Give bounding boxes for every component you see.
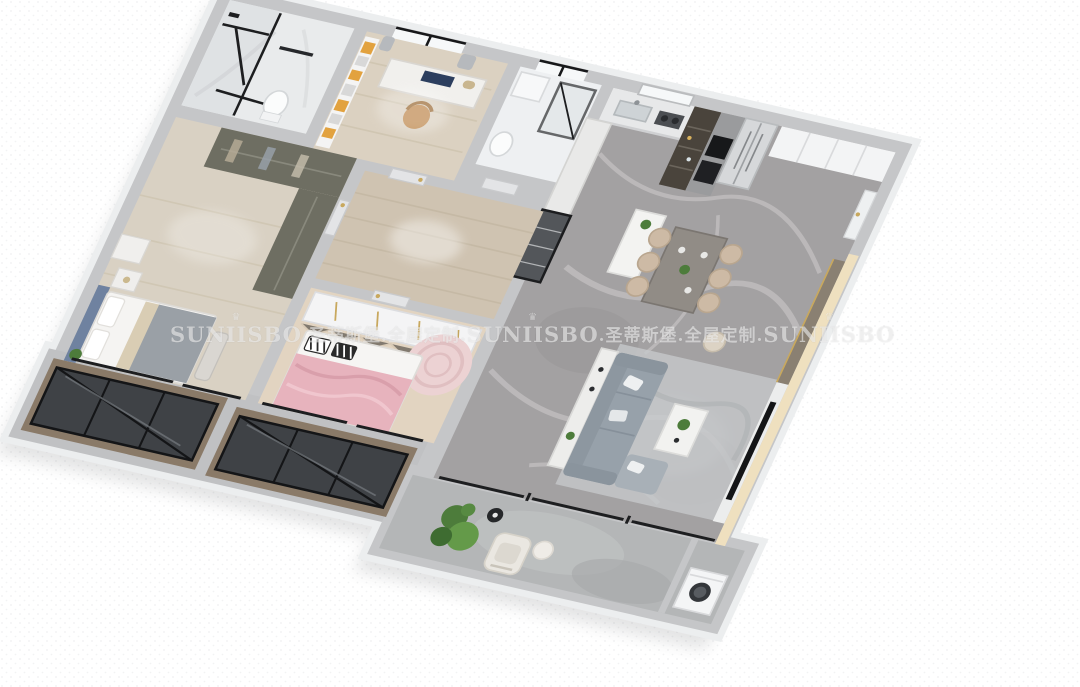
apartment-3d-scene — [0, 0, 1080, 687]
floorplan-render: ♛SUNIISBO.圣蒂斯堡.全屋定制. ♛SUNIISBO.圣蒂斯堡.全屋定制… — [0, 0, 1080, 687]
